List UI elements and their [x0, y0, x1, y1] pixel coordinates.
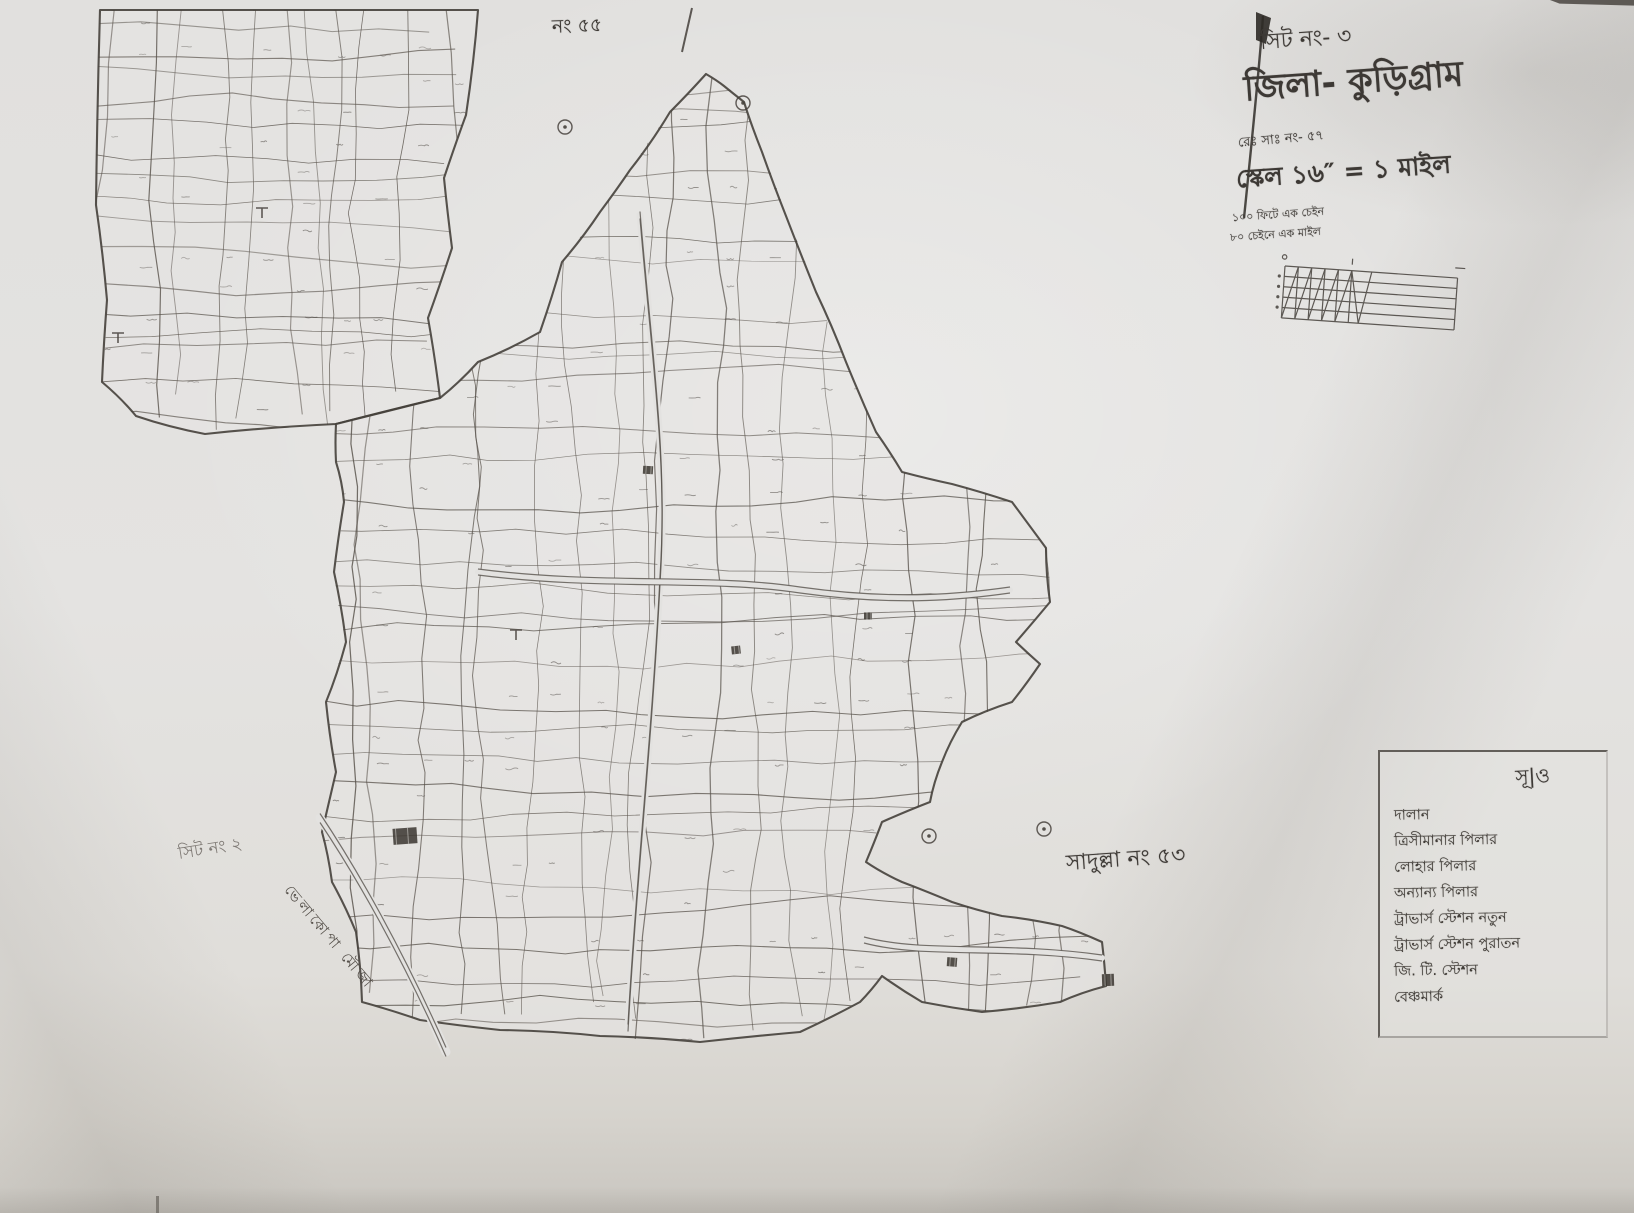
top-sheet-number-label: নং ৫৫	[551, 11, 602, 45]
legend-item-iron-pillar: লোহার পিলার	[1380, 851, 1606, 881]
legend-item-traverse-station-new: ট্রাভার্স স্টেশন নতুন	[1380, 903, 1606, 933]
plot-texture-layer	[95, 10, 1106, 1045]
legend-item-gt-station: জি. টি. স্টেশন	[1380, 955, 1606, 985]
legend-item-building: দালান	[1380, 799, 1606, 829]
legend-header: সূ|ও	[1379, 746, 1607, 807]
scanned-mouza-map-photo: { "colors": { "paper": "#e3e2e0", "ink":…	[0, 0, 1634, 1213]
legend-item-trijunction-pillar: ত্রিসীমানার পিলার	[1380, 825, 1606, 855]
legend-box: সূ|ও দালান ত্রিসীমানার পিলার লোহার পিলার…	[1378, 750, 1608, 1038]
legend-item-other-pillar: অন্যান্য পিলার	[1380, 877, 1606, 907]
legend-item-traverse-station-old: ট্রাভার্স স্টেশন পুরাতন	[1380, 929, 1606, 959]
legend-item-benchmark: বেঞ্চমার্ক	[1380, 981, 1606, 1011]
